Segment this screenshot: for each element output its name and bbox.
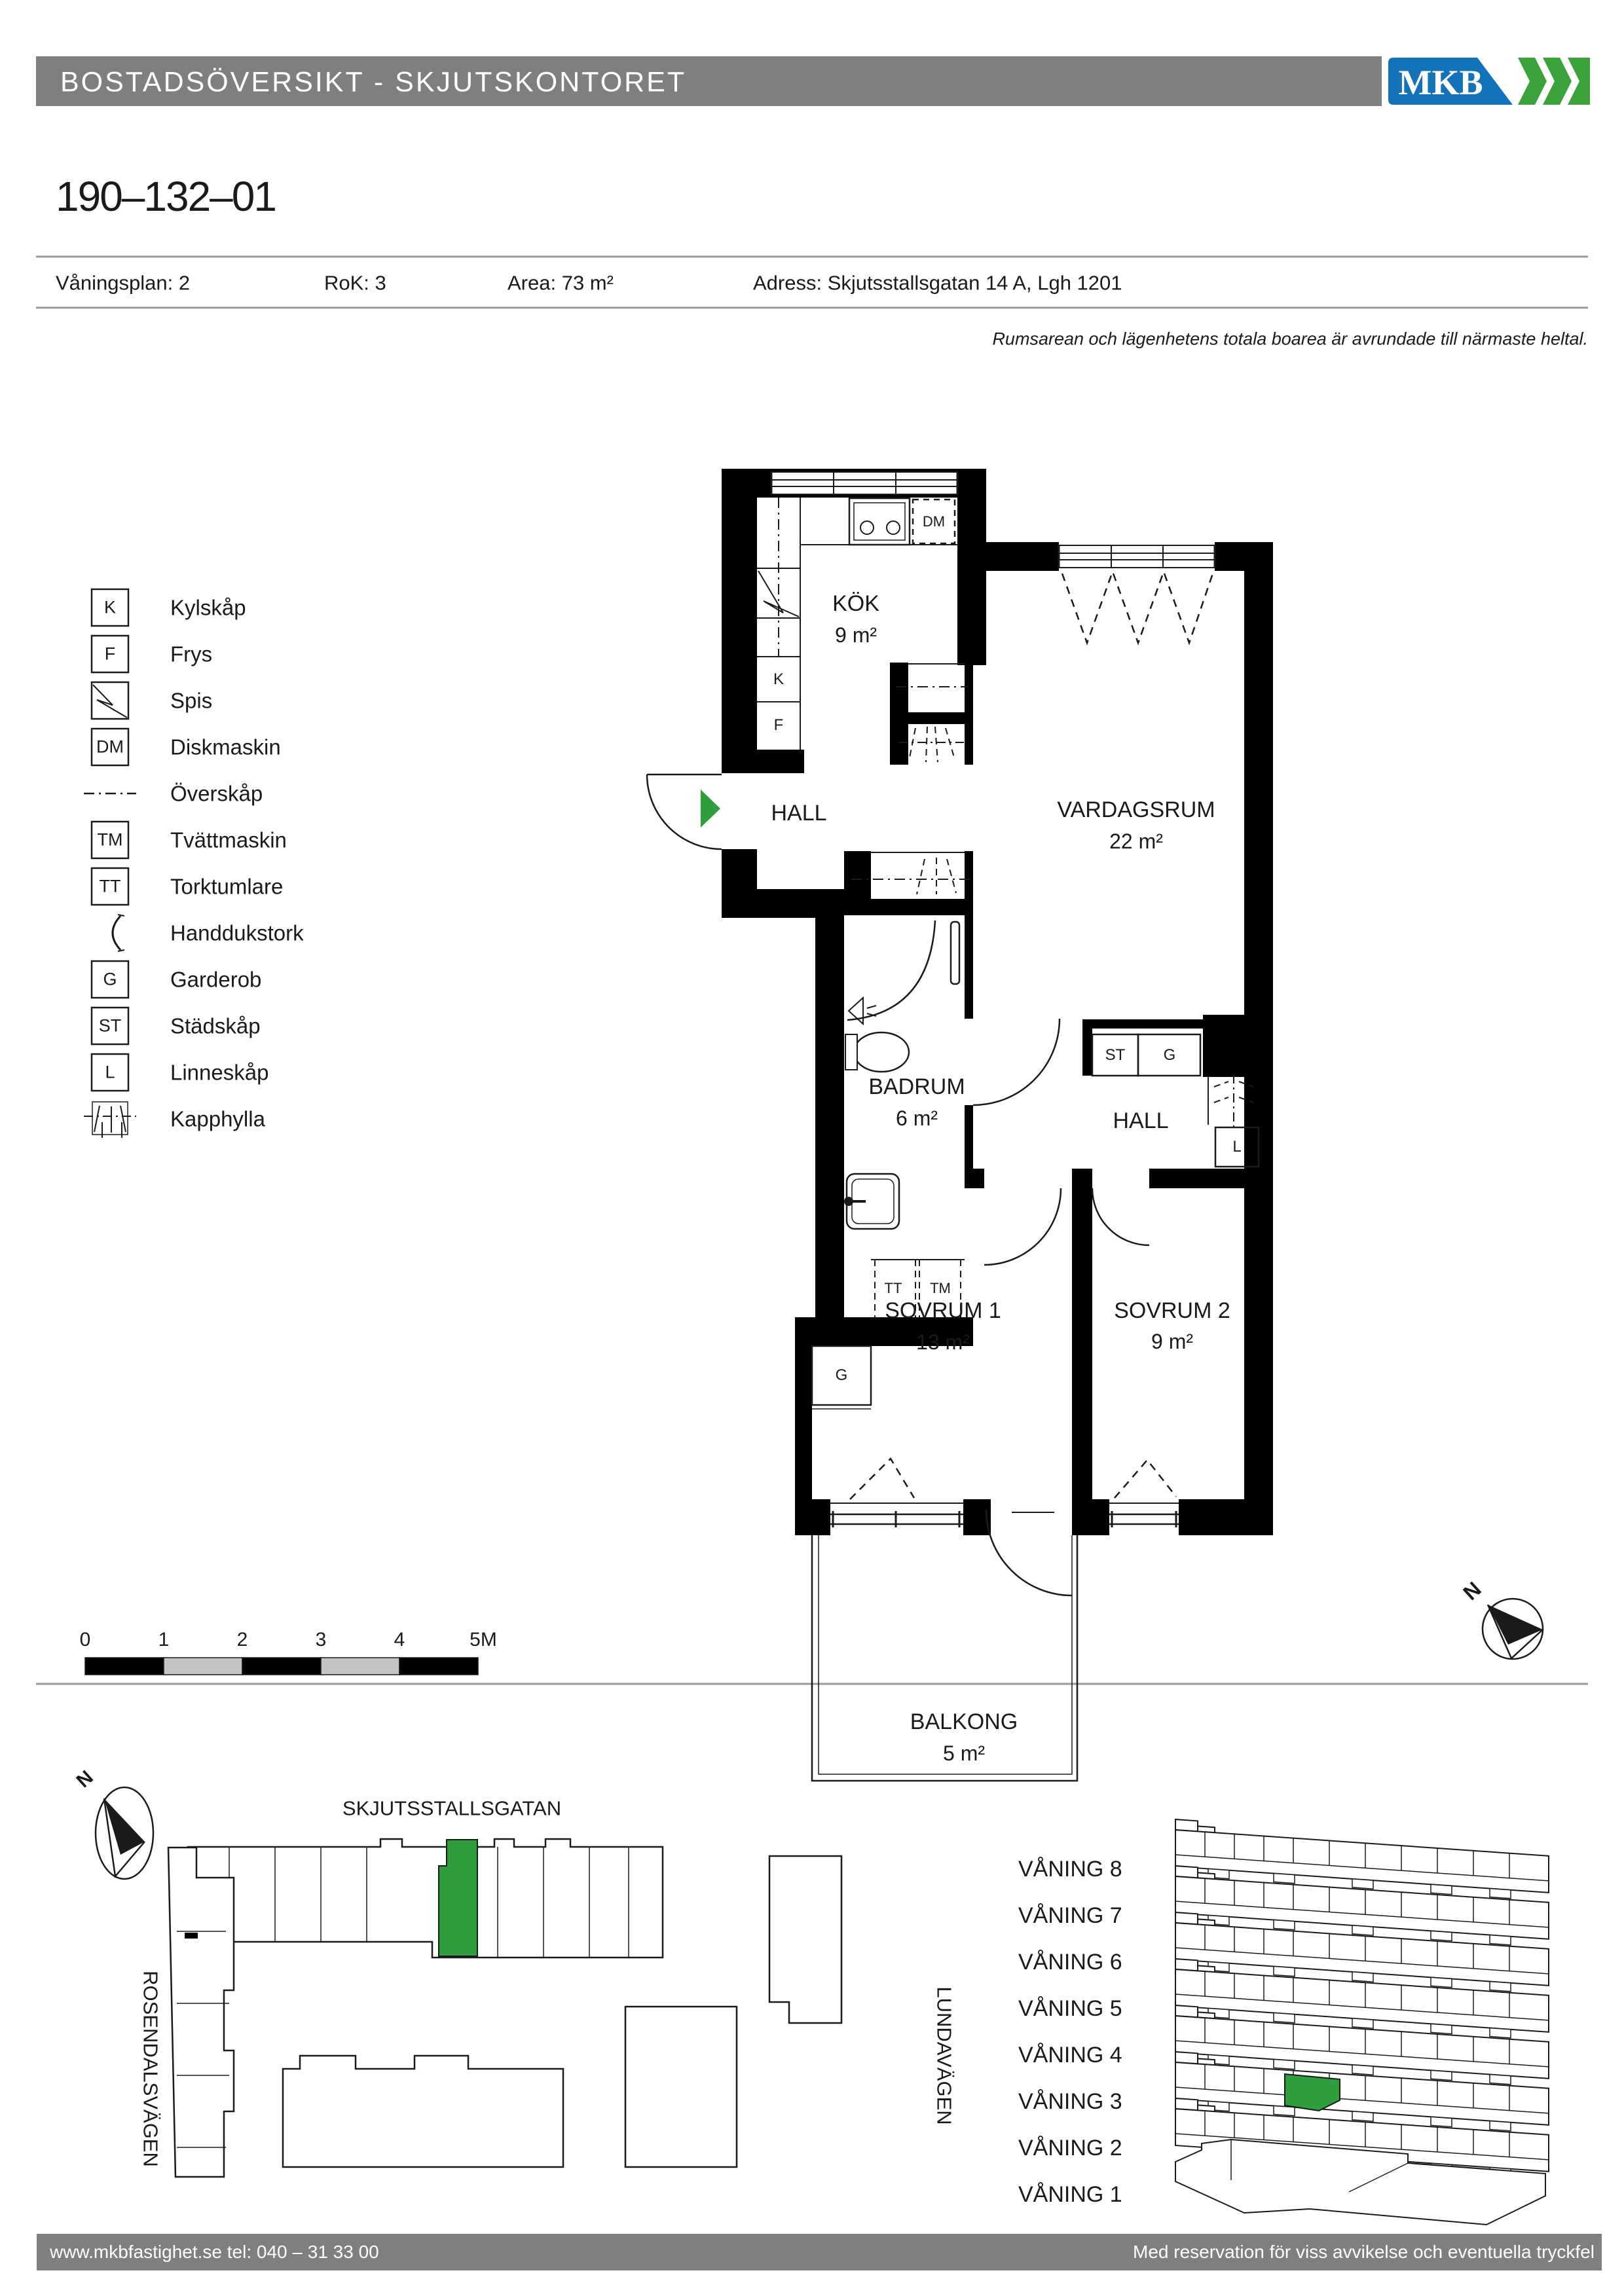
legend-symbol-st: ST — [99, 1017, 122, 1035]
balcony-door — [986, 1510, 1072, 1595]
header-title: BOSTADSÖVERSIKT - SKJUTSKONTORET — [60, 69, 686, 97]
legend-label-garderob: Garderob — [170, 969, 261, 991]
legend-label-handdukstork: Handdukstork — [170, 922, 304, 944]
legend-symbol-tm: TM — [98, 831, 123, 849]
legend-symbol-g: G — [103, 971, 117, 989]
floor-label-vaning5: VÅNING 5 — [1018, 1997, 1122, 2020]
room-area-kok: 9 m² — [835, 625, 877, 646]
legend-symbol-k: K — [104, 599, 116, 617]
north-compass — [1483, 1599, 1543, 1659]
sink — [845, 1174, 899, 1229]
building-south-east — [625, 2007, 737, 2167]
floor-plan — [647, 469, 1273, 1781]
street-skjutsstallsgatan: SKJUTSSTALLSGATAN — [342, 1798, 561, 1819]
room-area-sovrum1: 13 m² — [916, 1332, 970, 1353]
legend-label-torktumlare: Torktumlare — [170, 876, 283, 898]
sovrum2-door — [1092, 1188, 1149, 1245]
fixture-f: F — [774, 718, 784, 733]
scale-tick-5: 5M — [470, 1630, 497, 1650]
room-label-vardagsrum: VARDAGSRUM — [1057, 799, 1215, 821]
scale-tick-0: 0 — [80, 1630, 91, 1650]
info-vaningsplan: Våningsplan: 2 — [56, 273, 190, 293]
street-rosendalsvagen: ROSENDALSVÄGEN — [141, 1971, 161, 2167]
fixture-g-hall: G — [1164, 1048, 1176, 1063]
window-sovrum1 — [830, 1459, 963, 1533]
legend-label-overskap: Överskåp — [170, 783, 263, 805]
scale-bar — [85, 1658, 478, 1675]
legend-label-tvattmaskin: Tvättmaskin — [170, 829, 287, 851]
building-north — [188, 1839, 663, 1958]
room-label-sovrum1: SOVRUM 1 — [885, 1300, 1001, 1322]
fixture-tt: TT — [885, 1281, 902, 1296]
room-label-hall-entry: HALL — [771, 802, 826, 824]
floor-label-vaning4: VÅNING 4 — [1018, 2044, 1122, 2066]
floor-label-vaning3: VÅNING 3 — [1018, 2090, 1122, 2113]
open-door-leaf — [951, 922, 959, 984]
fixture-l: L — [1232, 1139, 1241, 1155]
room-area-vardagsrum: 22 m² — [1109, 831, 1163, 852]
legend-label-kapphylla: Kapphylla — [170, 1108, 265, 1130]
fixture-tm: TM — [930, 1281, 951, 1296]
floor-label-vaning1: VÅNING 1 — [1018, 2183, 1122, 2206]
fixture-st: ST — [1105, 1048, 1126, 1063]
toilet — [845, 1032, 909, 1072]
scale-tick-2: 2 — [237, 1630, 248, 1650]
page: { "colors": { "header_gray": "#7f7f7f", … — [0, 0, 1624, 2296]
rounding-note: Rumsarean och lägenhetens totala boarea … — [992, 331, 1588, 348]
legend-label-kylskap: Kylskåp — [170, 597, 246, 619]
mkb-logo-text: MKB — [1399, 65, 1483, 100]
footer-left: www.mkbfastighet.se tel: 040 – 31 33 00 — [50, 2243, 379, 2261]
legend-symbol-l: L — [105, 1064, 115, 1082]
legend-symbol-tt: TT — [100, 878, 121, 896]
fixture-dm: DM — [923, 515, 945, 529]
building-west — [168, 1848, 234, 2177]
site-compass — [96, 1787, 153, 1879]
handdukstork-icon — [113, 916, 120, 950]
entrance-arrow-icon — [701, 790, 720, 828]
legend-symbols — [84, 589, 136, 1138]
shower-arc — [847, 920, 935, 1020]
scale-tick-4: 4 — [394, 1630, 405, 1650]
window-vardagsrum — [1059, 545, 1215, 643]
floor-label-vaning6: VÅNING 6 — [1018, 1951, 1122, 1973]
fixture-g-sovrum: G — [836, 1368, 848, 1383]
room-label-kok: KÖK — [832, 592, 879, 615]
walls — [722, 469, 1273, 1535]
scale-tick-1: 1 — [158, 1630, 170, 1650]
footer-right: Med reservation för viss avvikelse och e… — [1133, 2243, 1595, 2261]
room-area-badrum: 6 m² — [896, 1108, 938, 1129]
room-label-hall-inner: HALL — [1113, 1110, 1168, 1132]
window-kok — [771, 471, 957, 495]
window-opening-dashes — [1062, 574, 1213, 643]
apartment-id: 190–132–01 — [56, 175, 276, 217]
stove — [849, 498, 910, 545]
floor-stack-graphic — [1175, 1819, 1549, 2225]
room-area-sovrum2: 9 m² — [1151, 1331, 1193, 1352]
building-east — [769, 1856, 841, 2023]
info-area: Area: 73 m² — [507, 273, 614, 293]
room-label-sovrum2: SOVRUM 2 — [1114, 1300, 1230, 1322]
floor-label-vaning2: VÅNING 2 — [1018, 2137, 1122, 2159]
info-adress: Adress: Skjutsstallsgatan 14 A, Lgh 1201 — [753, 273, 1122, 293]
legend-label-stadskap: Städskåp — [170, 1015, 261, 1037]
window-sovrum2 — [1109, 1460, 1179, 1533]
legend-label-diskmaskin: Diskmaskin — [170, 737, 281, 758]
spis-zigzag-icon — [93, 685, 127, 718]
sovrum1-door — [984, 1188, 1061, 1265]
floor-label-vaning7: VÅNING 7 — [1018, 1904, 1122, 1927]
legend-symbol-f: F — [105, 646, 116, 663]
legend-label-frys: Frys — [170, 644, 212, 665]
site-map — [96, 1787, 841, 2177]
legend-label-spis: Spis — [170, 690, 212, 712]
fixture-k: K — [773, 672, 784, 687]
badrum-door — [973, 1019, 1060, 1105]
legend-symbol-dm: DM — [96, 738, 124, 756]
info-rok: RoK: 3 — [324, 273, 386, 293]
floor-label-vaning8: VÅNING 8 — [1018, 1858, 1122, 1880]
kapphylla-icon — [84, 1102, 136, 1138]
street-lundavagen: LUNDAVÄGEN — [934, 1986, 955, 2124]
scale-tick-3: 3 — [316, 1630, 327, 1650]
room-label-badrum: BADRUM — [868, 1076, 965, 1098]
legend-label-linneskap: Linneskåp — [170, 1062, 268, 1084]
building-south-mid — [283, 2056, 563, 2167]
room-area-balkong: 5 m² — [943, 1743, 985, 1764]
room-label-balkong: BALKONG — [910, 1711, 1018, 1733]
